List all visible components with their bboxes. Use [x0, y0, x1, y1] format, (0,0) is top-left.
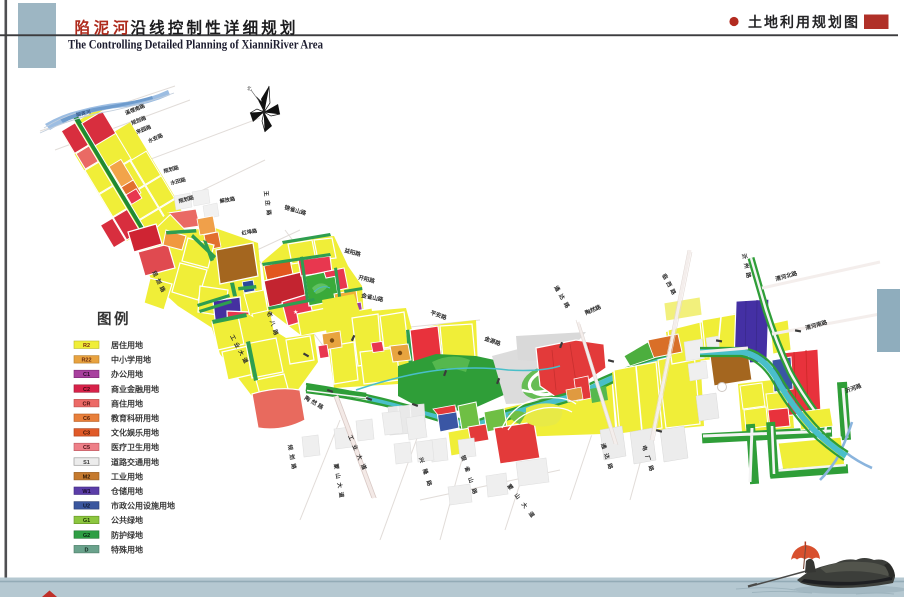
svg-text:文化娱乐用地: 文化娱乐用地: [111, 428, 159, 438]
svg-text:图例: 图例: [97, 310, 131, 328]
svg-text:土地利用规划图: 土地利用规划图: [748, 14, 858, 30]
svg-text:道路交通用地: 道路交通用地: [111, 457, 159, 467]
svg-text:教育科研用地: 教育科研用地: [110, 413, 159, 423]
svg-text:C1: C1: [83, 372, 90, 378]
svg-text:D: D: [85, 547, 89, 553]
svg-text:C5: C5: [83, 445, 90, 451]
svg-text:C3: C3: [83, 431, 90, 437]
svg-text:G1: G1: [83, 518, 90, 524]
svg-text:防护绿地: 防护绿地: [111, 530, 143, 540]
svg-text:U2: U2: [83, 504, 90, 510]
svg-text:医疗卫生用地: 医疗卫生用地: [111, 442, 159, 452]
svg-text:G2: G2: [83, 533, 90, 539]
svg-text:市政公用设施用地: 市政公用设施用地: [111, 501, 175, 511]
svg-text:工业用地: 工业用地: [111, 471, 143, 481]
svg-text:公共绿地: 公共绿地: [111, 515, 143, 525]
svg-text:M2: M2: [83, 474, 91, 480]
svg-text:中小学用地: 中小学用地: [111, 355, 151, 365]
svg-text:办公用地: 办公用地: [111, 369, 143, 379]
svg-text:C6: C6: [83, 416, 90, 422]
svg-text:北: 北: [247, 85, 252, 92]
svg-text:沿线控制性详细规划: 沿线控制性详细规划: [131, 18, 296, 37]
svg-text:特殊用地: 特殊用地: [111, 544, 143, 554]
svg-text:C2: C2: [83, 387, 90, 393]
svg-text:陷泥河: 陷泥河: [75, 18, 129, 37]
svg-text:商住用地: 商住用地: [111, 398, 143, 408]
svg-text:CR: CR: [83, 401, 91, 407]
svg-text:R2: R2: [83, 343, 90, 349]
svg-text:W1: W1: [82, 489, 90, 495]
svg-text:居住用地: 居住用地: [111, 340, 143, 350]
svg-text:R22: R22: [81, 358, 91, 364]
svg-text:The Controlling Detailed Plann: The Controlling Detailed Planning of Xia…: [68, 38, 324, 52]
svg-text:商业金融用地: 商业金融用地: [111, 384, 159, 394]
svg-text:S1: S1: [83, 460, 90, 466]
svg-text:仓储用地: 仓储用地: [110, 486, 143, 496]
